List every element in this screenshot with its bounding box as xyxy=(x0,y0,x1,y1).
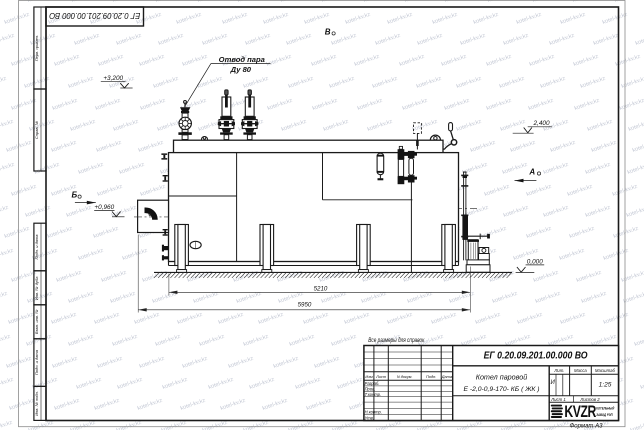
svg-text:Дата: Дата xyxy=(441,374,453,379)
svg-text:Взам. инв. №: Взам. инв. № xyxy=(34,309,39,334)
svg-text:Н.контр.: Н.контр. xyxy=(365,410,382,415)
svg-text:KVZR: KVZR xyxy=(564,403,596,421)
svg-text:А: А xyxy=(528,167,535,176)
svg-text:Инв. № подл.: Инв. № подл. xyxy=(34,391,39,416)
svg-text:Лист 1: Лист 1 xyxy=(550,397,566,402)
svg-text:5950: 5950 xyxy=(298,301,312,308)
svg-text:И: И xyxy=(550,380,555,386)
svg-text:N докум.: N докум. xyxy=(397,374,413,379)
svg-text:Б: Б xyxy=(71,191,77,200)
svg-text:В: В xyxy=(325,28,331,37)
svg-text:Справ. №: Справ. № xyxy=(34,120,39,139)
svg-text:Перв. примен.: Перв. примен. xyxy=(34,35,39,62)
svg-text:Т.контр.: Т.контр. xyxy=(365,392,382,397)
svg-text:Подп. и дата: Подп. и дата xyxy=(34,349,39,375)
svg-text:Масса: Масса xyxy=(574,368,587,373)
svg-text:КОТЕЛЬНЫЙ: КОТЕЛЬНЫЙ xyxy=(596,406,614,411)
svg-text:Формат А3: Формат А3 xyxy=(570,422,604,429)
svg-text:5210: 5210 xyxy=(314,285,328,292)
svg-text:Масштаб: Масштаб xyxy=(595,368,616,373)
svg-text:Изм: Изм xyxy=(365,374,373,379)
svg-text:Утв.: Утв. xyxy=(365,415,374,420)
svg-text:Все размеры для справок: Все размеры для справок xyxy=(368,337,425,344)
svg-text:ЕГ 0.20.09.201.00.000 ВО: ЕГ 0.20.09.201.00.000 ВО xyxy=(484,351,588,362)
svg-text:ЕГ 0.20.09.201.00.000 ВО: ЕГ 0.20.09.201.00.000 ВО xyxy=(49,11,140,21)
svg-text:2,400: 2,400 xyxy=(533,120,550,127)
svg-text:+0,960: +0,960 xyxy=(94,204,114,211)
svg-text:+3,200: +3,200 xyxy=(103,75,123,82)
svg-text:Котел паровой: Котел паровой xyxy=(476,372,528,381)
svg-text:Е -2,0-0,9-170- КБ ( ЖК ): Е -2,0-0,9-170- КБ ( ЖК ) xyxy=(464,386,540,393)
svg-text:Ду 80: Ду 80 xyxy=(230,65,252,74)
svg-text:Лит.: Лит. xyxy=(553,368,564,373)
svg-text:Пров.: Пров. xyxy=(365,386,376,391)
svg-text:Инв. № дубл.: Инв. № дубл. xyxy=(34,275,39,300)
svg-text:1:25: 1:25 xyxy=(599,382,612,389)
svg-text:Подп. и дата: Подп. и дата xyxy=(34,234,39,260)
svg-text:Листов 2: Листов 2 xyxy=(579,397,600,402)
svg-text:Подп.: Подп. xyxy=(426,374,436,379)
svg-text:Разраб.: Разраб. xyxy=(365,381,380,386)
svg-text:Отвод пара: Отвод пара xyxy=(219,55,265,64)
svg-text:Лист: Лист xyxy=(375,374,387,379)
svg-text:ЗАВОД РЭП: ЗАВОД РЭП xyxy=(596,412,613,417)
